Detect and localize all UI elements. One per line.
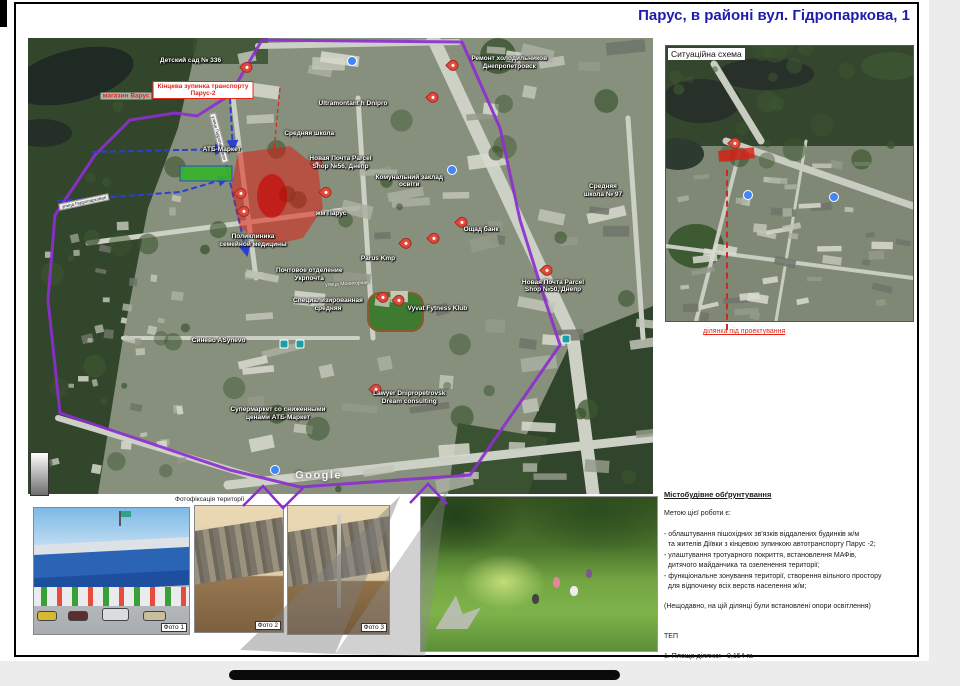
google-watermark: Google [295, 469, 342, 482]
poi-square-icon [561, 334, 570, 343]
project-site-leader-line [726, 170, 728, 330]
photo-decor [143, 611, 166, 621]
justification-note: (Нещодавно, на цій ділянці були встановл… [664, 602, 916, 613]
page-title: Парус, в районі вул. Гідропаркова, 1 [638, 7, 910, 24]
poi-dot-icon [270, 465, 280, 475]
map-label: Vyvat Fytness Klub [408, 305, 468, 313]
varus-store-annotation: магазин Варус [101, 92, 152, 99]
photo-decor [68, 611, 88, 621]
map-label: Специализированная средняя [293, 297, 363, 313]
map-label: Поликлиника семейной медицины [219, 233, 286, 249]
main-satellite-map: Детский сад № 336 Ремонт холодильников Д… [28, 38, 653, 494]
map-label: Ultramontant h Dnipro [319, 100, 388, 108]
corner-mark [0, 0, 7, 27]
photo-decor [570, 586, 578, 596]
map-label: Комунальний заклад освіти [375, 174, 443, 190]
photo-label: Фото 2 [255, 621, 281, 630]
map-label: Новая Почта Parcel Shop №50, Днепр [522, 279, 584, 295]
photo-decor [435, 595, 481, 629]
photo-lighting-pole: Фото 3 [287, 505, 390, 635]
tep-heading: ТЕП [664, 632, 916, 643]
justification-intro: Метою цієї роботи є: [664, 509, 916, 520]
document-viewer: { "page": { "title": "Парус, в районі ву… [0, 0, 960, 686]
situational-map-title: Ситуаційна схема [668, 48, 745, 60]
poi-dot-icon [743, 190, 753, 200]
poi-dot-icon [829, 192, 839, 202]
map-label: Средняя школа № 97 [584, 183, 622, 199]
map-label: Ощад банк [464, 226, 499, 234]
photo-park-scene [420, 496, 658, 652]
map-label: Супермаркет со сниженными ценами АТБ-Мар… [230, 406, 325, 422]
photo-label: Фото 1 [161, 623, 187, 632]
tep-area-value: 1. Площа ділянки - 0,154 га [664, 652, 916, 663]
photo-decor [337, 514, 341, 609]
map-label: Детский сад № 336 [160, 57, 221, 65]
map-label: жм Парус [316, 210, 346, 218]
map-label: АТБ-Маркет [203, 146, 241, 154]
photo-decor [33, 587, 190, 606]
bus-terminus-annotation: Кінцева зупинка транспорту Парус-2 [153, 81, 254, 99]
poi-square-icon [295, 339, 304, 348]
map-label: Почтовое отделение Укрпочта [276, 267, 342, 283]
photo-decor [194, 515, 284, 585]
map-label: Lawyer Dnipropetrovsk Dream consulting [373, 390, 445, 406]
photo-decor [586, 569, 592, 578]
justification-bullet: - функціональне зонування території, ств… [664, 572, 916, 593]
justification-heading: Містобудівне обґрунтування [664, 489, 916, 500]
situational-map-graphic [666, 46, 913, 321]
poi-square-icon [280, 339, 289, 348]
photo-apartment-block: Фото 2 [194, 505, 284, 633]
justification-bullet: - облаштування пішохідних зв'язків відда… [664, 530, 916, 551]
flag-icon [119, 511, 121, 526]
map-label: Новая Почта Parcel Shop №56, Днепр [309, 156, 371, 172]
map-label: Ремонт холодильников Днепропетровск [471, 55, 547, 71]
map-label: Средняя школа [284, 130, 334, 138]
situational-scheme-map: Ситуаційна схема [665, 45, 914, 322]
poi-dot-icon [347, 56, 357, 66]
poi-dot-icon [447, 165, 457, 175]
photo-decor [532, 594, 539, 604]
photo-label: Фото 3 [361, 623, 387, 632]
photo-decor [102, 608, 129, 621]
map-label: Parus Kmp [361, 255, 395, 263]
photo-decor [37, 611, 57, 621]
project-site-callout: ділянка під проектування [703, 328, 785, 335]
horizontal-scrollbar-thumb[interactable] [229, 670, 620, 680]
map-zoom-control[interactable] [30, 452, 49, 496]
justification-section: Містобудівне обґрунтування Метою цієї ро… [664, 489, 916, 662]
map-label: Синево ASynevo [192, 337, 246, 345]
photo-supermarket: Фото 1 [33, 507, 190, 635]
photo-section-caption: Фотофіксація території [175, 496, 244, 503]
viewer-right-gutter [929, 0, 960, 686]
justification-bullet: - улаштування тротуарного покриття, вста… [664, 551, 916, 572]
photo-decor [553, 577, 560, 588]
